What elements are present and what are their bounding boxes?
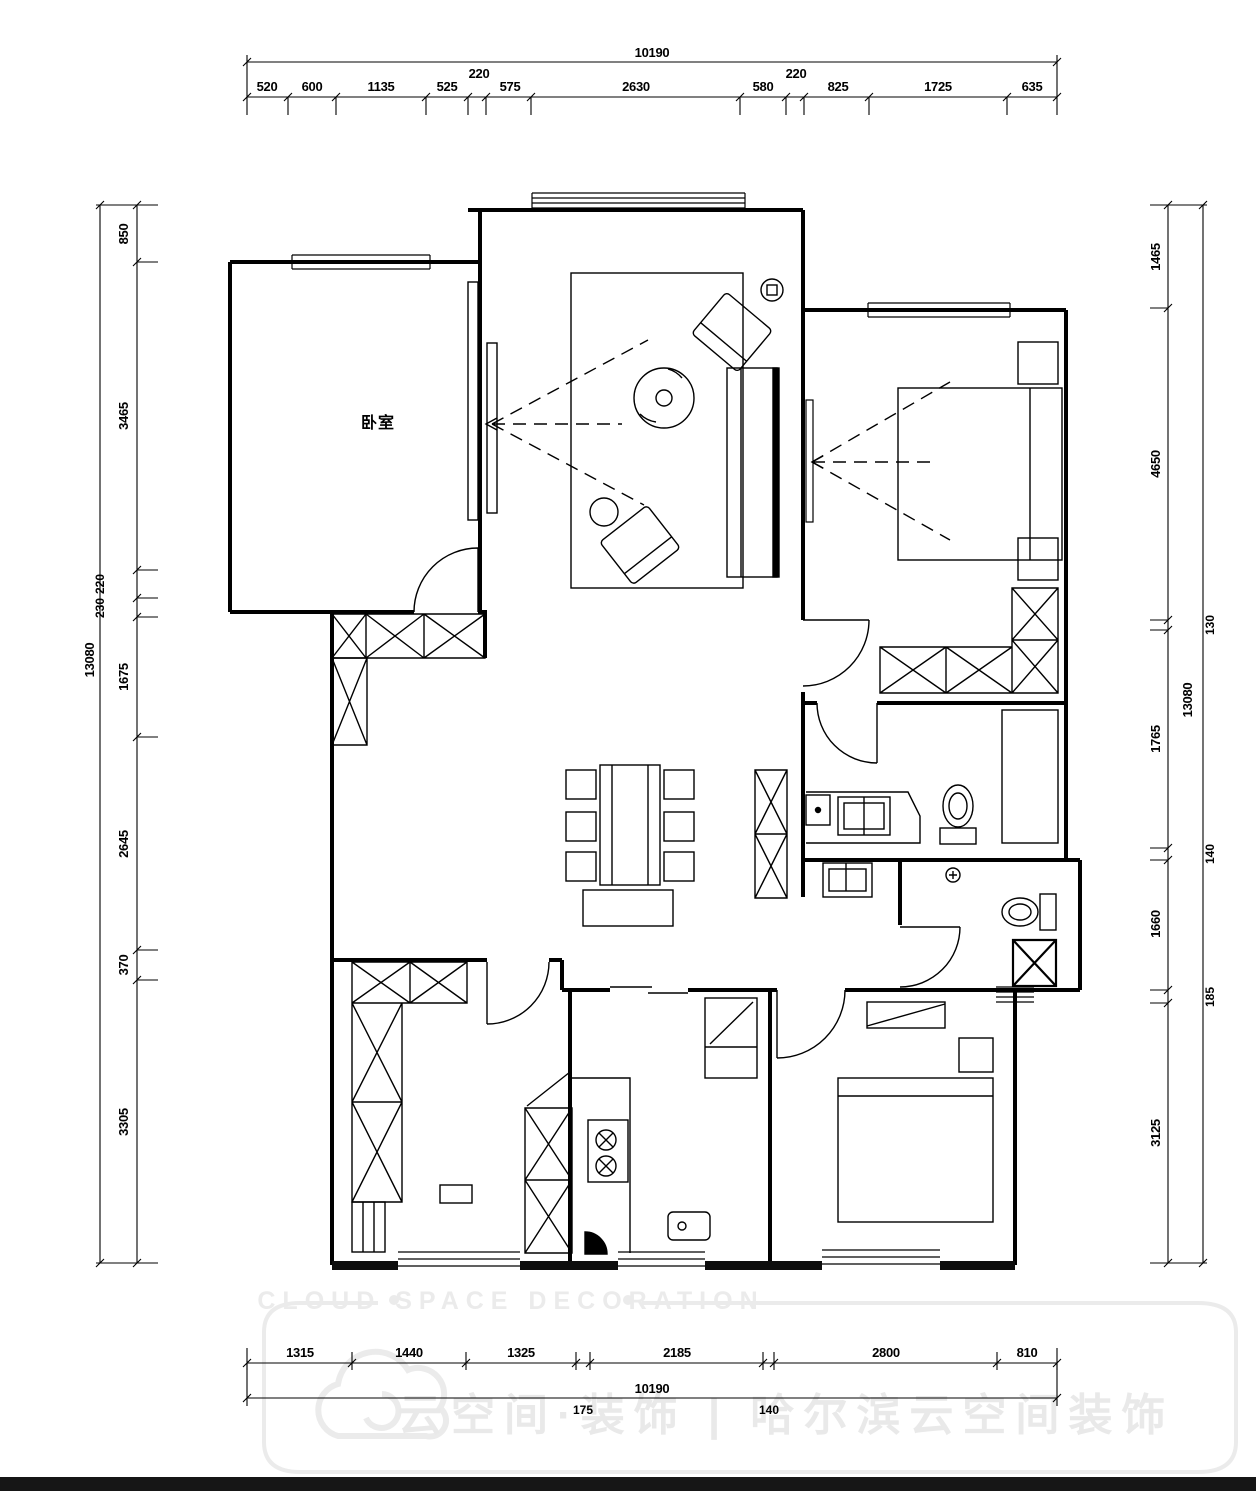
watermark: CLOUD SPACE DECORATION 云空间·装饰 | 哈尔滨云空间装饰 <box>257 1287 1236 1472</box>
dim-bottom-seg: 1440 <box>395 1345 423 1360</box>
dining-chair <box>566 812 596 841</box>
dim-top-seg: 635 <box>1022 79 1043 94</box>
dimension-chain-right: 1465 4650 130 1765 140 1660 185 3125 130… <box>1148 201 1217 1267</box>
cabinet-hall-tall <box>755 770 787 898</box>
door-master-bedroom <box>803 620 869 686</box>
bathroom-upper <box>806 710 1058 844</box>
cabinets <box>332 588 1058 1253</box>
dim-bottom-seg-small: 175 <box>573 1403 593 1417</box>
dim-left-seg-small: 230 <box>93 598 107 618</box>
dim-top-seg: 1135 <box>367 79 394 94</box>
ceiling-lamp-core <box>767 285 777 295</box>
bottom-wall-segment <box>940 1261 1015 1270</box>
dim-top-seg: 220 <box>469 66 490 81</box>
floor-plan-canvas: CLOUD SPACE DECORATION 云空间·装饰 | 哈尔滨云空间装饰 <box>0 0 1256 1491</box>
dining-chair <box>664 770 694 799</box>
dim-top-seg: 1725 <box>924 79 952 94</box>
floor-drain-cross <box>949 871 957 879</box>
dim-bottom-seg: 1315 <box>286 1345 314 1360</box>
tv-sightlines-master <box>812 382 950 540</box>
dim-left-seg: 2645 <box>116 830 131 858</box>
desk-diagonal <box>867 1004 945 1026</box>
bathroom-lower <box>823 863 1056 930</box>
dim-bottom-seg-small: 140 <box>759 1403 779 1417</box>
bed-bottom <box>838 1078 993 1222</box>
dim-right-seg: 1660 <box>1148 910 1163 938</box>
corner-symbol <box>585 1232 607 1254</box>
dimension-chain-top: 10190 520 600 1135 525 220 575 2630 580 … <box>243 45 1061 115</box>
sofa <box>727 368 777 577</box>
door-bedroom-bottom <box>777 990 845 1058</box>
dining-chair <box>664 852 694 881</box>
wardrobe-room-bottom-left <box>352 962 467 1202</box>
bed-master <box>898 388 1062 560</box>
door-bath-upper <box>817 703 877 763</box>
bottom-bar <box>0 1477 1256 1491</box>
dim-left-seg: 850 <box>116 224 131 245</box>
room-label-bedroom: 卧室 <box>361 413 395 432</box>
armchair-bottom <box>600 505 681 584</box>
room-bottom-left-furniture <box>352 1185 472 1252</box>
dim-left-seg: 3305 <box>116 1108 131 1136</box>
dim-bottom-total: 10190 <box>635 1381 670 1396</box>
dim-right-seg: 1765 <box>1148 725 1163 753</box>
wardrobe-master <box>880 588 1058 693</box>
stove <box>588 1120 628 1182</box>
tv-sightlines-living <box>486 340 648 505</box>
dim-right-seg: 4650 <box>1148 450 1163 478</box>
rug <box>571 273 743 588</box>
dim-top-seg: 220 <box>786 66 807 81</box>
window-bedroom-top-left <box>292 255 430 269</box>
round-table <box>634 368 694 428</box>
dining-chair <box>566 852 596 881</box>
door-room-bottom-left <box>487 962 549 1024</box>
toilet-bowl-upper <box>943 785 973 827</box>
low-cabinet <box>352 1202 385 1252</box>
bedroom-bottom-furniture <box>838 1002 993 1222</box>
window-bedroom-bottom <box>822 1250 940 1264</box>
window-master-bedroom <box>868 303 1010 317</box>
cabinet-hallway-row <box>332 614 485 658</box>
dim-right-seg: 3125 <box>1148 1119 1163 1147</box>
shower-area-upper <box>1002 710 1058 843</box>
armchair-top <box>692 292 773 372</box>
toilet-bowl-lower-inner <box>1009 904 1031 920</box>
dining-chair <box>664 812 694 841</box>
nightstand <box>959 1038 993 1072</box>
nightstand <box>1018 538 1058 580</box>
stool <box>590 498 618 526</box>
tv-panel-bedroom-side <box>468 282 478 520</box>
dim-right-total: 13080 <box>1180 683 1195 718</box>
cabinet-divider-column <box>525 1072 572 1253</box>
bottom-wall-segment <box>520 1261 618 1270</box>
watermark-frame <box>264 1303 1236 1472</box>
dim-top-seg: 825 <box>828 79 849 94</box>
dim-left-seg: 1675 <box>116 663 131 691</box>
dim-left-total: 13080 <box>82 643 97 678</box>
dim-bottom-seg: 2800 <box>872 1345 900 1360</box>
kitchen-counter <box>572 1078 630 1253</box>
toilet-bowl-inner <box>949 793 967 819</box>
door-bath-lower <box>900 927 960 987</box>
sink-drain <box>678 1222 686 1230</box>
burner-cross <box>599 1159 613 1173</box>
dim-bottom-seg: 2185 <box>663 1345 691 1360</box>
fridge-door-line <box>710 1002 753 1044</box>
window-room-bottom-left <box>398 1252 520 1266</box>
round-table-decor <box>640 369 682 422</box>
door-kitchen-sliding <box>610 987 688 993</box>
wall-panel-master <box>806 400 813 522</box>
dim-left-seg: 370 <box>116 955 131 976</box>
washbasin-hall <box>823 863 872 897</box>
outer-walls <box>230 210 1080 1265</box>
dim-top-seg: 580 <box>753 79 774 94</box>
sideboard <box>583 890 673 926</box>
floor-plan-page: CLOUD SPACE DECORATION 云空间·装饰 | 哈尔滨云空间装饰 <box>0 0 1256 1491</box>
door-bedroom-top-left <box>414 548 478 612</box>
nightstand <box>1018 342 1058 384</box>
dim-bottom-seg: 1325 <box>507 1345 535 1360</box>
bottom-wall-segment <box>332 1261 398 1270</box>
window-balcony-living <box>532 193 745 210</box>
dim-right-seg-small: 130 <box>1203 615 1217 635</box>
cabinet-knob <box>816 808 821 813</box>
fridge <box>705 998 757 1078</box>
toilet-tank-upper <box>940 828 976 844</box>
sofa-wall-strip <box>773 368 779 577</box>
dim-top-seg: 600 <box>302 79 323 94</box>
window-kitchen <box>618 1252 705 1266</box>
dining-chair <box>566 770 596 799</box>
kitchen-furniture <box>572 998 757 1254</box>
dim-bottom-seg: 810 <box>1017 1345 1038 1360</box>
dim-right-seg-small: 185 <box>1203 987 1217 1007</box>
toilet-bowl-lower <box>1002 898 1038 926</box>
dim-top-total: 10190 <box>635 45 670 60</box>
small-table <box>440 1185 472 1203</box>
master-bedroom-furniture <box>898 342 1062 580</box>
dim-top-seg: 2630 <box>622 79 650 94</box>
dim-left-seg-small: 220 <box>93 574 107 594</box>
dimension-chain-left: 850 3465 220 230 1675 2645 370 3305 1308… <box>82 201 158 1267</box>
bottom-wall-segment <box>705 1261 822 1270</box>
watermark-en-text: CLOUD SPACE DECORATION <box>257 1287 764 1315</box>
shower-box-lower-bath <box>1013 940 1056 986</box>
toilet-tank-lower <box>1040 894 1056 930</box>
burner-cross <box>599 1133 613 1147</box>
dim-top-seg: 525 <box>437 79 458 94</box>
cabinet-hallway-column <box>332 658 367 745</box>
ceiling-lamp-icon <box>761 279 783 301</box>
dining-furniture <box>566 765 694 926</box>
round-table-center <box>656 390 672 406</box>
dim-top-seg: 520 <box>257 79 278 94</box>
dim-top-seg: 575 <box>500 79 521 94</box>
kitchen-sink <box>668 1212 710 1240</box>
dim-right-seg: 1465 <box>1148 243 1163 271</box>
living-room-furniture <box>468 273 783 588</box>
washbasin-basin <box>829 869 866 891</box>
dim-left-seg: 3465 <box>116 402 131 430</box>
dim-right-seg-small: 140 <box>1203 844 1217 864</box>
windows <box>292 193 1034 1266</box>
dining-table <box>600 765 660 885</box>
